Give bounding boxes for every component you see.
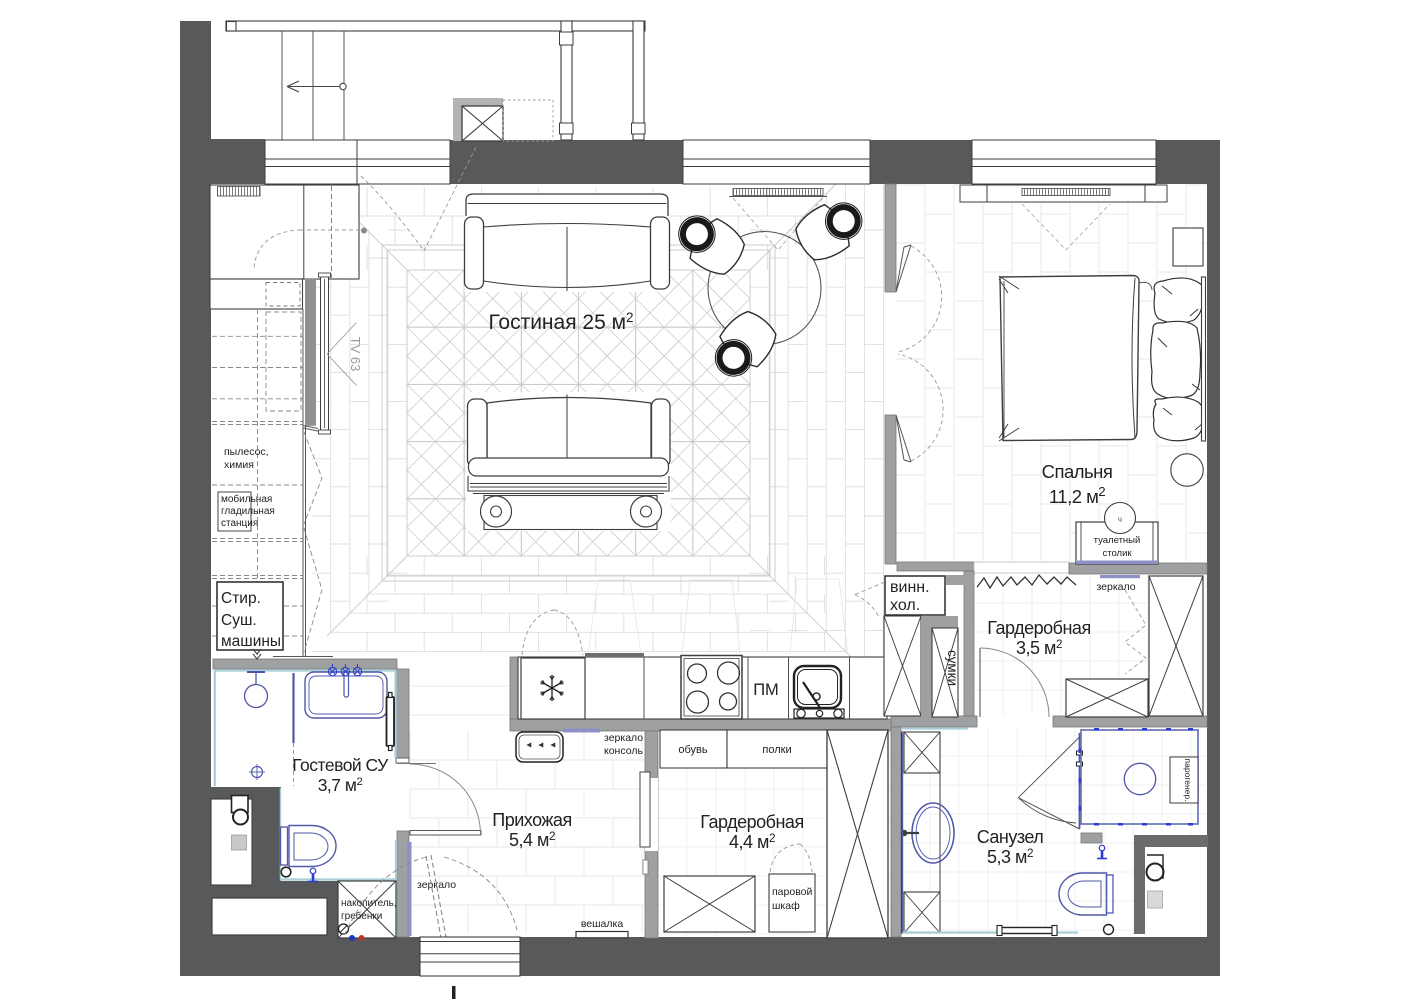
svg-text:Гостиная 25 м2: Гостиная 25 м2 bbox=[488, 310, 633, 334]
svg-text:3,7 м2: 3,7 м2 bbox=[318, 775, 363, 795]
svg-text:машины: машины bbox=[221, 633, 281, 650]
svg-text:гладильная: гладильная bbox=[221, 506, 275, 517]
svg-text:Санузел: Санузел bbox=[977, 827, 1044, 847]
svg-text:TV 63: TV 63 bbox=[348, 337, 363, 372]
svg-text:4,4 м2: 4,4 м2 bbox=[729, 832, 775, 852]
svg-text:винн.: винн. bbox=[890, 579, 930, 596]
svg-text:пылесос,: пылесос, bbox=[224, 446, 269, 458]
svg-text:3,5 м2: 3,5 м2 bbox=[1016, 638, 1062, 658]
svg-text:Гардеробная: Гардеробная bbox=[700, 812, 803, 832]
svg-text:зеркало: зеркало bbox=[417, 879, 456, 891]
svg-text:шкаф: шкаф bbox=[772, 900, 800, 912]
svg-text:станция: станция bbox=[221, 518, 258, 529]
svg-text:сумки: сумки bbox=[945, 650, 960, 686]
svg-text:Стир.: Стир. bbox=[221, 590, 261, 607]
svg-text:5,3 м2: 5,3 м2 bbox=[987, 847, 1033, 867]
svg-text:Прихожая: Прихожая bbox=[492, 810, 571, 830]
svg-text:хол.: хол. bbox=[890, 597, 920, 614]
svg-text:Гостевой СУ: Гостевой СУ bbox=[292, 755, 389, 775]
svg-text:Гардеробная: Гардеробная bbox=[987, 618, 1090, 638]
svg-text:ПМ: ПМ bbox=[753, 681, 779, 699]
svg-text:полки: полки bbox=[762, 744, 791, 756]
svg-text:зеркало: зеркало bbox=[604, 732, 643, 744]
svg-text:Спальня: Спальня bbox=[1042, 461, 1113, 482]
svg-text:консоль: консоль bbox=[604, 745, 643, 757]
svg-text:мобильная: мобильная bbox=[221, 493, 272, 505]
svg-text:парогенер.: парогенер. bbox=[1183, 759, 1193, 802]
svg-text:зеркало: зеркало bbox=[1096, 581, 1135, 593]
svg-text:гребенки: гребенки bbox=[341, 910, 382, 922]
svg-text:туалетный: туалетный bbox=[1094, 535, 1141, 546]
svg-text:ч: ч bbox=[1118, 515, 1122, 524]
svg-text:столик: столик bbox=[1102, 548, 1132, 559]
svg-text:11,2 м2: 11,2 м2 bbox=[1049, 484, 1106, 507]
svg-text:накопитель,: накопитель, bbox=[341, 898, 397, 909]
svg-text:обувь: обувь bbox=[678, 744, 708, 756]
svg-text:Суш.: Суш. bbox=[221, 612, 257, 629]
svg-text:вешалка: вешалка bbox=[581, 918, 624, 930]
svg-text:паровой: паровой bbox=[772, 886, 813, 898]
svg-text:химия: химия bbox=[224, 459, 254, 471]
svg-text:5,4 м2: 5,4 м2 bbox=[509, 830, 555, 850]
